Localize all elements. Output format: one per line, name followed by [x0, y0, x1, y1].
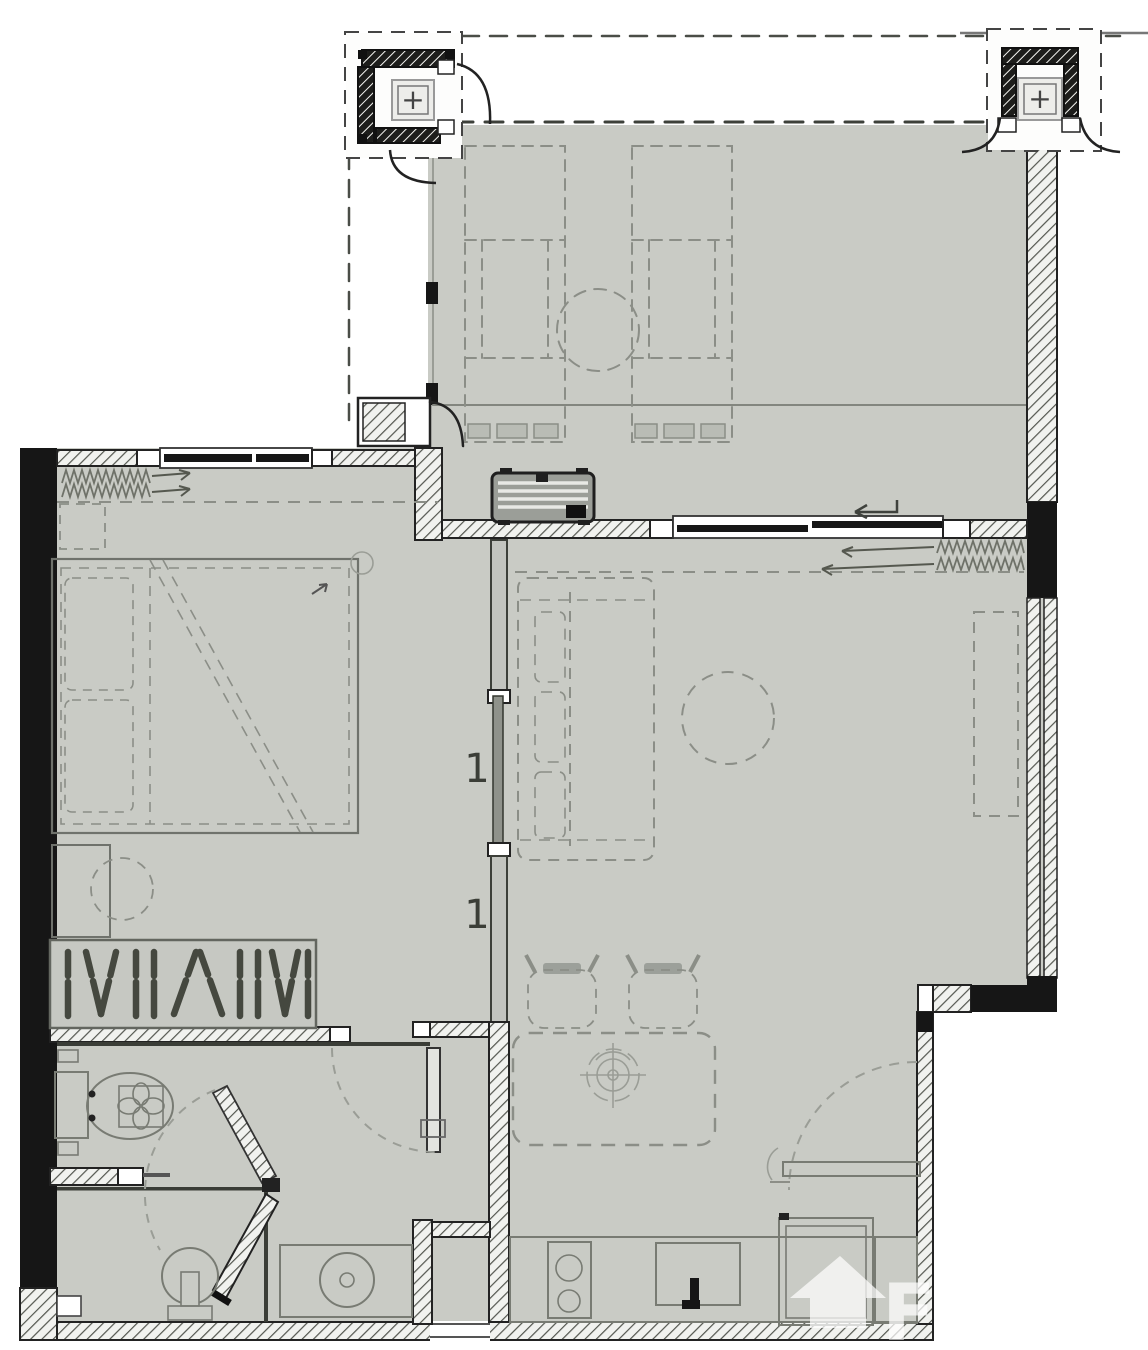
wall-jamb: [413, 1022, 430, 1037]
shower-wall-top: [57, 1187, 268, 1191]
column-plus-mark: +: [401, 83, 424, 116]
exterior-wall-left-corner: [20, 1288, 57, 1340]
air-conditioner-unit: [492, 468, 594, 525]
wall-cap: [917, 1012, 933, 1032]
floor-plan-page: + +: [0, 0, 1148, 1350]
half-wall-line: [143, 1173, 170, 1177]
step-wall-black: [971, 985, 1057, 1012]
bath-half-wall: [50, 1168, 118, 1185]
exterior-wall-right-black: [1027, 502, 1057, 598]
exterior-wall-right-b: [1044, 598, 1057, 978]
wardrobe-with-hangers: [50, 940, 316, 1028]
fixture-box: [57, 1296, 81, 1316]
svg-text:+: +: [401, 83, 424, 116]
wall-jamb: [918, 985, 933, 1012]
wall-tick: [426, 282, 438, 304]
floor-plan-drawing: + +: [0, 0, 1148, 1350]
door-marker: 1: [464, 892, 489, 938]
sliding-door: [493, 696, 503, 848]
hall-wall-hatch: [430, 1022, 489, 1037]
partition-wall: [488, 540, 510, 1322]
column-plus-mark: +: [1028, 82, 1051, 115]
exterior-wall-right-a: [1027, 598, 1040, 978]
floor-area: [57, 110, 1057, 1340]
hall-wall-connector: [432, 1222, 490, 1237]
step-wall-hatch: [933, 985, 971, 1012]
structural-column-right: +: [960, 29, 1148, 152]
hall-wall-a: [413, 1220, 432, 1324]
entry-threshold: [430, 1321, 490, 1341]
watermark-letter: F: [882, 1269, 935, 1350]
wall-jamb: [118, 1168, 143, 1185]
svg-text:+: +: [1028, 82, 1051, 115]
bathroom-top-wall: [57, 1042, 430, 1046]
door-marker: 1: [464, 746, 489, 792]
wall-jamb: [330, 1027, 350, 1042]
exterior-wall-right-upper: [1027, 128, 1057, 502]
